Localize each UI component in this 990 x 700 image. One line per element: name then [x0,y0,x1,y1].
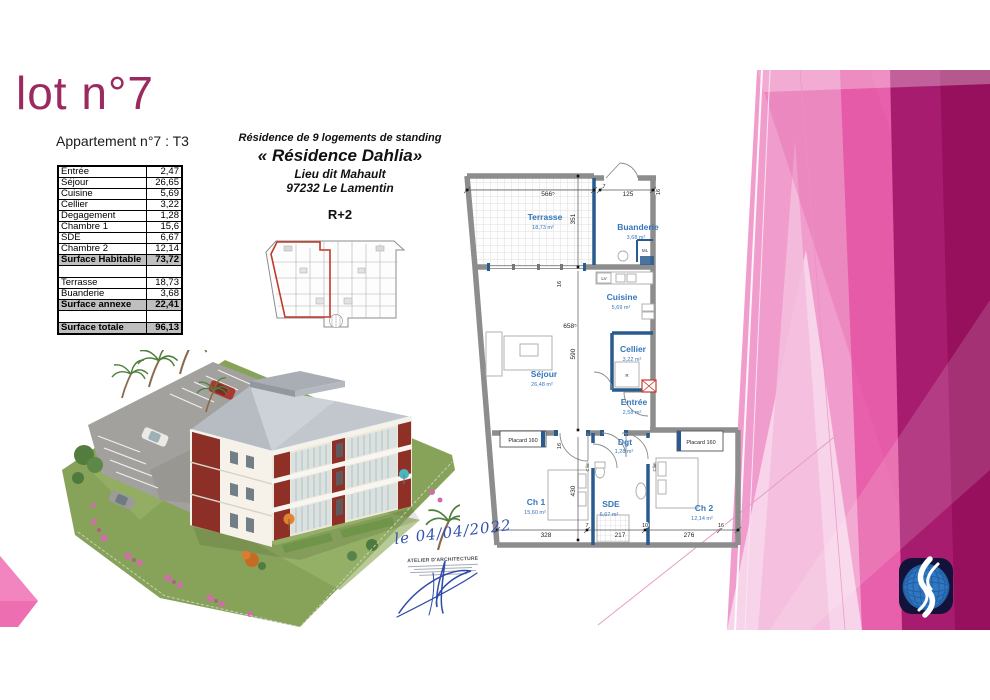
svg-text:1,28 m²: 1,28 m² [615,449,634,455]
page: lot n°7 Appartement n°7 : T3 Entrée2,47S… [0,0,990,700]
pink-bottom-left-wedge [0,556,38,627]
surface-table-body: Entrée2,47Séjour26,65Cuisine5,69Cellier3… [58,166,182,334]
surface-row: Cellier3,22 [58,200,182,211]
svg-text:7: 7 [585,523,588,529]
label-lv: LV [601,276,606,281]
key-plan [255,228,415,336]
surface-row-label: Chambre 1 [58,222,147,233]
svg-text:18,73 m²: 18,73 m² [532,225,554,231]
svg-text:7: 7 [602,184,605,190]
surface-row-label: Surface Habitable [58,255,147,266]
svg-text:217: 217 [615,532,626,539]
promoter-logo [897,556,957,618]
key-plan-outline [266,241,404,327]
label-placard-right: Placard 160 [686,440,715,446]
svg-text:430: 430 [570,485,577,496]
label-placard-left: Placard 160 [508,438,537,444]
label-terrasse: Terrasse [528,212,563,222]
label-buanderie: Buanderie [617,222,659,232]
surface-row-value: 6,67 [147,233,182,244]
residence-header: Résidence de 9 logements de standing « R… [230,132,450,222]
surface-row-value [147,311,182,323]
svg-text:16: 16 [557,443,563,449]
label-ch1: Ch 1 [527,497,546,507]
surface-row [58,266,182,278]
residence-level: R+2 [230,207,450,222]
svg-text:3,68 m²: 3,68 m² [627,235,646,241]
label-ch2: Ch 2 [695,503,714,513]
surface-row-label: Entrée [58,166,147,178]
surface-row-value: 15,6 [147,222,182,233]
surface-row: Degagement1,28 [58,211,182,222]
surface-row-value: 3,22 [147,200,182,211]
surface-row-label [58,266,147,278]
surface-row-label: Chambre 2 [58,244,147,255]
surface-row: Surface totale96,13 [58,323,182,335]
surface-row-label: SDE [58,233,147,244]
surface-row-label: Cuisine [58,189,147,200]
page-title: lot n°7 [16,66,154,120]
svg-text:566⁵: 566⁵ [541,191,555,198]
surface-row: Entrée2,47 [58,166,182,178]
label-entree: Entrée [621,397,648,407]
residence-city: 97232 Le Lamentin [230,181,450,195]
surface-row-value [147,266,182,278]
signature [385,545,495,625]
surface-row-value: 2,47 [147,166,182,178]
residence-subtitle: Résidence de 9 logements de standing [230,132,450,144]
surface-row: Cuisine5,69 [58,189,182,200]
surface-row: Chambre 212,14 [58,244,182,255]
residence-name: « Résidence Dahlia» [230,146,450,166]
surface-row-label: Surface annexe [58,300,147,311]
entry-door-symbol [642,380,656,392]
surface-row-label: Degagement [58,211,147,222]
surface-row-label [58,311,147,323]
surface-row: Terrasse18,73 [58,278,182,289]
label-clim-right: Clim [652,462,657,471]
svg-text:2,58 m²: 2,58 m² [623,410,642,416]
svg-text:125: 125 [623,191,634,198]
surface-row-value: 96,13 [147,323,182,335]
surface-row-label: Buanderie [58,289,147,300]
label-sde: SDE [602,499,620,509]
label-cellier: Cellier [620,344,647,354]
svg-text:12,14 m²: 12,14 m² [691,516,713,522]
surface-row: Surface annexe22,41 [58,300,182,311]
surface-row: Buanderie3,68 [58,289,182,300]
surface-row [58,311,182,323]
residence-place: Lieu dit Mahault [230,167,450,181]
svg-text:16: 16 [656,189,662,195]
surface-row-value: 73,72 [147,255,182,266]
label-dgt: Dgt [618,437,632,447]
label-cuisine: Cuisine [607,292,638,302]
svg-text:10: 10 [642,523,648,529]
surface-row-label: Séjour [58,178,147,189]
svg-text:328: 328 [541,532,552,539]
svg-text:26,48 m²: 26,48 m² [531,382,553,388]
svg-text:5,69 m²: 5,69 m² [612,305,631,311]
surface-row-value: 12,14 [147,244,182,255]
svg-text:658⁵: 658⁵ [563,323,577,330]
surface-table: Entrée2,47Séjour26,65Cuisine5,69Cellier3… [57,165,183,335]
surface-row-value: 5,69 [147,189,182,200]
surface-row-label: Terrasse [58,278,147,289]
surface-row: Chambre 115,6 [58,222,182,233]
svg-text:351: 351 [570,213,577,224]
svg-text:276: 276 [684,532,695,539]
svg-text:3,22 m²: 3,22 m² [623,357,642,363]
svg-text:15,60 m²: 15,60 m² [524,510,546,516]
svg-text:590: 590 [570,348,577,359]
svg-text:6,67 m²: 6,67 m² [600,512,619,518]
surface-row-value: 26,65 [147,178,182,189]
label-sejour: Séjour [531,369,558,379]
surface-row-value: 1,28 [147,211,182,222]
apartment-heading: Appartement n°7 : T3 [56,133,189,149]
surface-row-value: 22,41 [147,300,182,311]
surface-row-value: 18,73 [147,278,182,289]
floor-plan: Terrasse 18,73 m² Buanderie 3,68 m² Cuis… [455,160,755,570]
surface-row: Séjour26,65 [58,178,182,189]
svg-text:16: 16 [557,281,563,287]
surface-row: Surface Habitable73,72 [58,255,182,266]
key-plan-stairs [330,315,343,328]
label-clim-left: Clim [585,462,590,471]
surface-row-value: 3,68 [147,289,182,300]
surface-row: SDE6,67 [58,233,182,244]
label-ml: ML [642,248,649,253]
svg-text:16: 16 [718,523,724,529]
surface-row-label: Cellier [58,200,147,211]
surface-row-label: Surface totale [58,323,147,335]
